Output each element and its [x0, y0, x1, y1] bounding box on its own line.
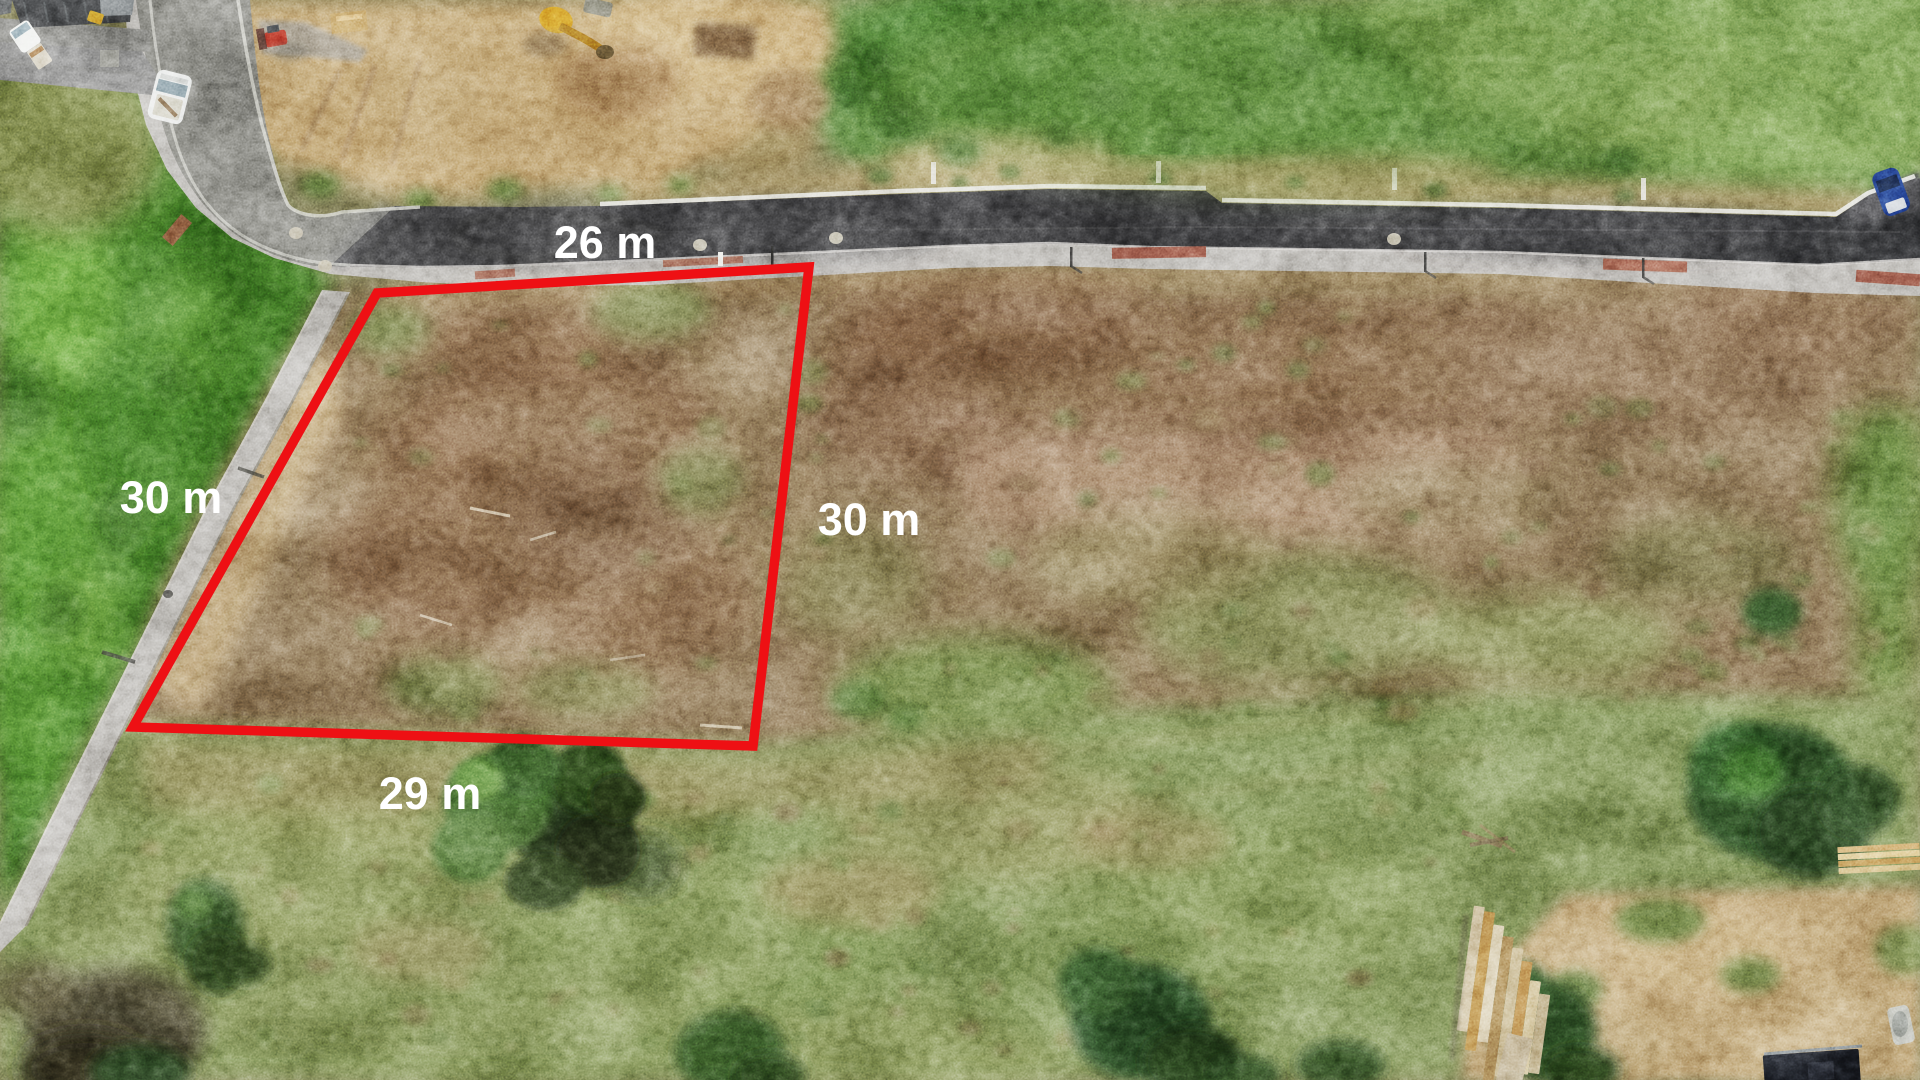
svg-text:26 m: 26 m: [554, 217, 657, 268]
svg-text:29 m: 29 m: [379, 768, 482, 819]
svg-text:30 m: 30 m: [120, 472, 223, 523]
svg-text:30 m: 30 m: [818, 494, 921, 545]
